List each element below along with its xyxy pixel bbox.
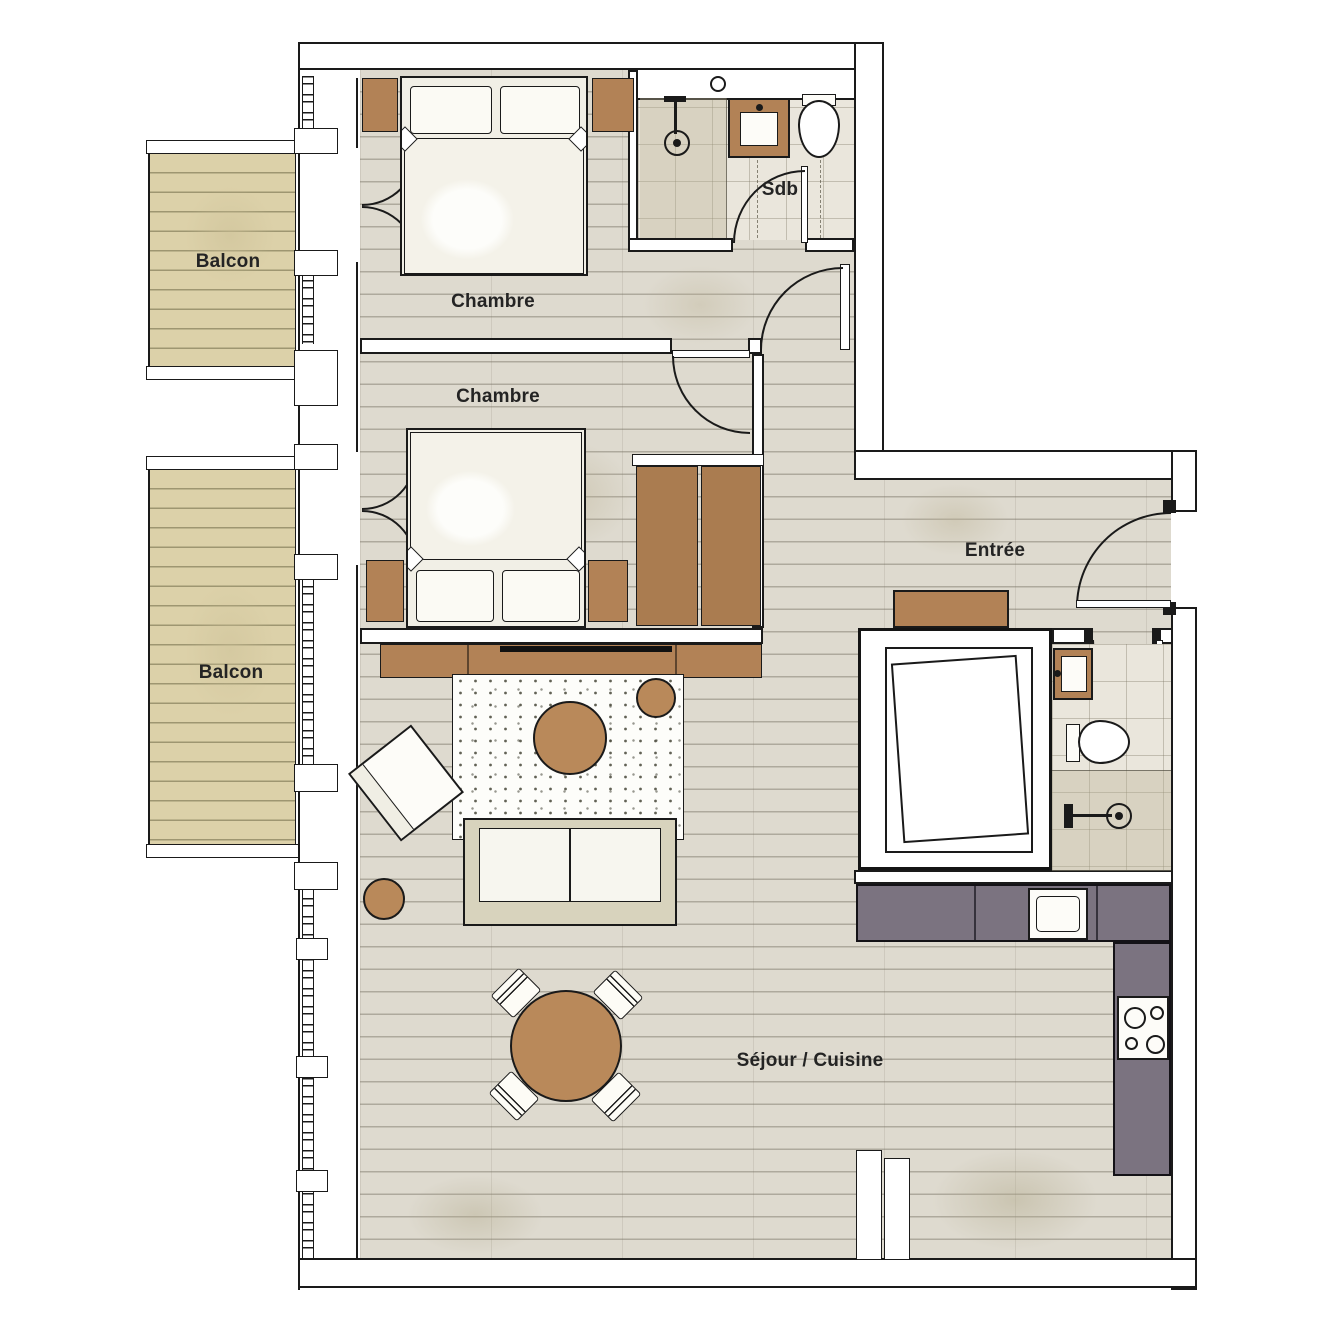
pillow <box>502 570 580 622</box>
nightstand <box>592 78 634 132</box>
burner <box>1124 1007 1146 1029</box>
window-pier <box>294 554 338 580</box>
wall-top <box>298 42 884 70</box>
window-wall-outer-line <box>298 46 300 1290</box>
window-pier <box>294 862 338 890</box>
bedroom1-bed <box>400 76 588 276</box>
balcony-top-slab-upper <box>146 140 300 154</box>
window-pier <box>294 444 338 470</box>
pillow <box>416 570 494 622</box>
kitchen-counter-top-run <box>856 884 1171 942</box>
entrance-door-leaf <box>1076 600 1171 608</box>
side-table <box>636 678 676 718</box>
closet-door-open <box>891 655 1029 843</box>
wc-faucet-dot <box>1054 670 1061 677</box>
wardrobe-shelf <box>632 454 764 466</box>
wall-bedroom-divider-a <box>360 338 672 354</box>
pillow <box>410 86 492 134</box>
entry-console <box>893 590 1009 628</box>
nightstand <box>588 560 628 622</box>
basin-faucet-dot <box>756 104 763 111</box>
wall-step <box>854 450 1197 480</box>
wall-bathroom-bottom-b <box>805 238 854 252</box>
wc-basin <box>1061 656 1087 692</box>
window-mullion <box>296 938 328 960</box>
label-bedroom-top: Chambre <box>451 291 535 313</box>
nightstand <box>366 560 404 622</box>
window-pier <box>294 764 338 792</box>
wall-right-lower-b <box>1171 607 1197 1290</box>
bathroom-light-symbol <box>710 76 726 92</box>
wardrobe <box>701 466 761 626</box>
duct-panel <box>856 1150 882 1260</box>
balcony-bottom-deck <box>148 470 296 844</box>
blanket <box>410 432 582 560</box>
wall-right-upper <box>854 42 884 452</box>
balcony-top-slab-lower <box>146 366 300 380</box>
bedroom2-bed <box>406 428 586 628</box>
burner <box>1150 1006 1164 1020</box>
wall-kitchen-back <box>854 870 1173 884</box>
closet-unit <box>858 628 1052 870</box>
nightstand <box>362 78 398 132</box>
burner <box>1125 1037 1138 1050</box>
bathroom-basin <box>740 112 778 146</box>
burner <box>1146 1035 1165 1054</box>
counter-divider <box>974 886 976 940</box>
wall-living-divider <box>360 628 763 644</box>
label-bedroom-middle: Chambre <box>456 386 540 408</box>
sofa-cushion-divider <box>569 828 571 902</box>
window-mullion <box>296 1056 328 1078</box>
window-pier <box>294 250 338 276</box>
window-pier <box>294 350 338 406</box>
exterior-void <box>884 60 1174 452</box>
coffee-table <box>533 701 607 775</box>
shower-drain-dot <box>673 139 681 147</box>
label-balcony-bottom: Balcon <box>199 662 264 684</box>
tv-screen <box>500 646 672 652</box>
window-wall-inner-line <box>356 262 358 452</box>
window-wall-inner-line <box>356 78 358 148</box>
balcony-bottom-slab-lower <box>146 844 300 858</box>
window-mullion <box>296 1170 328 1192</box>
sideboard-divider <box>467 645 469 677</box>
floor-plan: Balcon Balcon Chambre Chambre Sdb Entrée… <box>0 0 1333 1333</box>
shower-tray <box>640 98 727 240</box>
blanket <box>404 138 584 274</box>
wall-bottom <box>298 1258 1197 1288</box>
shower-hose-icon <box>674 100 677 134</box>
sideboard-divider <box>675 645 677 677</box>
kitchen-sink-basin <box>1036 896 1080 932</box>
label-bathroom: Sdb <box>762 179 799 201</box>
balcony-bottom-slab-upper <box>146 456 300 470</box>
duct-panel <box>884 1158 910 1260</box>
window-shutter-hatch <box>302 568 314 774</box>
dining-table <box>510 990 622 1102</box>
wall-bathroom-bottom-a <box>628 238 733 252</box>
wc-shower-dot <box>1115 812 1123 820</box>
guide-line <box>820 160 821 238</box>
wardrobe <box>636 466 698 626</box>
label-living-kitchen: Séjour / Cuisine <box>737 1050 884 1072</box>
window-wall-inner-line <box>356 565 358 1258</box>
label-balcony-top: Balcon <box>196 251 261 273</box>
pouf <box>363 878 405 920</box>
window-pier <box>294 128 338 154</box>
pillow <box>500 86 580 134</box>
cooktop <box>1117 996 1169 1060</box>
counter-divider <box>1096 886 1098 940</box>
sofa <box>463 818 677 926</box>
label-entry: Entrée <box>965 540 1025 562</box>
